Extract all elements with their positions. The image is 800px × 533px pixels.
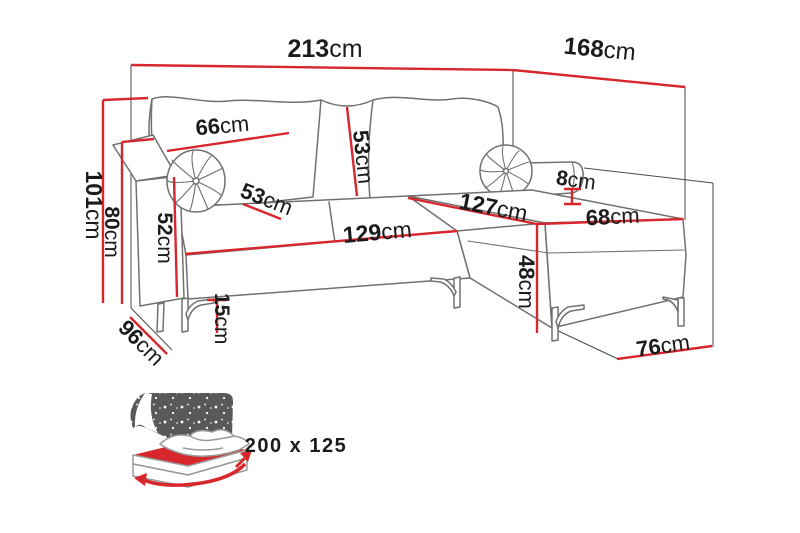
dim-label-chaise-seat-width: 68cm xyxy=(585,203,640,231)
dim-label-seat-height: 48cm xyxy=(514,255,539,309)
sleeping-size-label: 200 x 125 xyxy=(245,435,347,457)
dim-label-total-width: 213cm xyxy=(287,35,362,63)
dim-label-back-cushion-height: 53cm xyxy=(348,129,378,185)
round-pillow-right xyxy=(480,145,532,197)
sleeping-function-icon xyxy=(131,393,253,487)
dim-label-armrest-height: 52cm xyxy=(153,212,176,263)
dim-label-leg-height: 15cm xyxy=(210,293,233,344)
diagram-canvas: 213cm 168cm 66cm 53cm 101cm 80cm 52cm 53… xyxy=(0,0,800,533)
sofa-dimension-diagram: 213cm 168cm 66cm 53cm 101cm 80cm 52cm 53… xyxy=(0,0,800,533)
dim-label-total-depth: 168cm xyxy=(563,33,637,67)
dim-line-168 xyxy=(513,70,685,87)
dim-label-back-cushion-width: 66cm xyxy=(194,111,250,141)
back-cushion-gap xyxy=(321,100,373,106)
back-cushion-middle xyxy=(369,97,504,200)
dim-label-chaise-end-width: 76cm xyxy=(635,329,692,361)
dim-label-backrest-height: 80cm xyxy=(100,206,123,257)
dim-line-213 xyxy=(131,65,513,70)
